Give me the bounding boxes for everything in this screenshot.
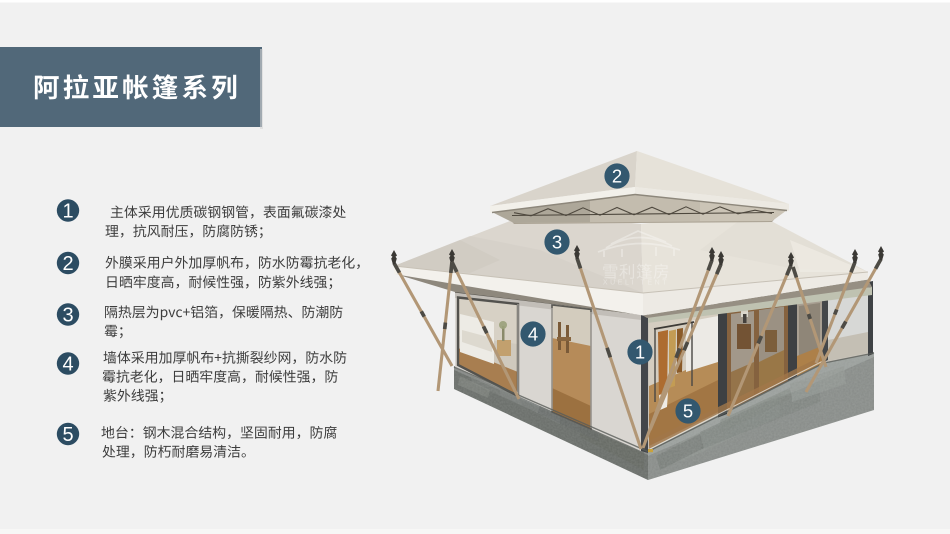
svg-text:5: 5: [62, 424, 73, 446]
svg-text:1: 1: [635, 342, 645, 363]
svg-text:5: 5: [683, 401, 693, 422]
svg-text:3: 3: [62, 305, 73, 327]
svg-text:3: 3: [552, 232, 562, 253]
svg-text:4: 4: [528, 324, 538, 345]
svg-text:1: 1: [62, 201, 73, 223]
svg-text:XUELI TENT: XUELI TENT: [603, 280, 669, 287]
svg-text:4: 4: [62, 354, 73, 376]
svg-text:2: 2: [612, 166, 622, 187]
svg-text:2: 2: [62, 253, 73, 275]
